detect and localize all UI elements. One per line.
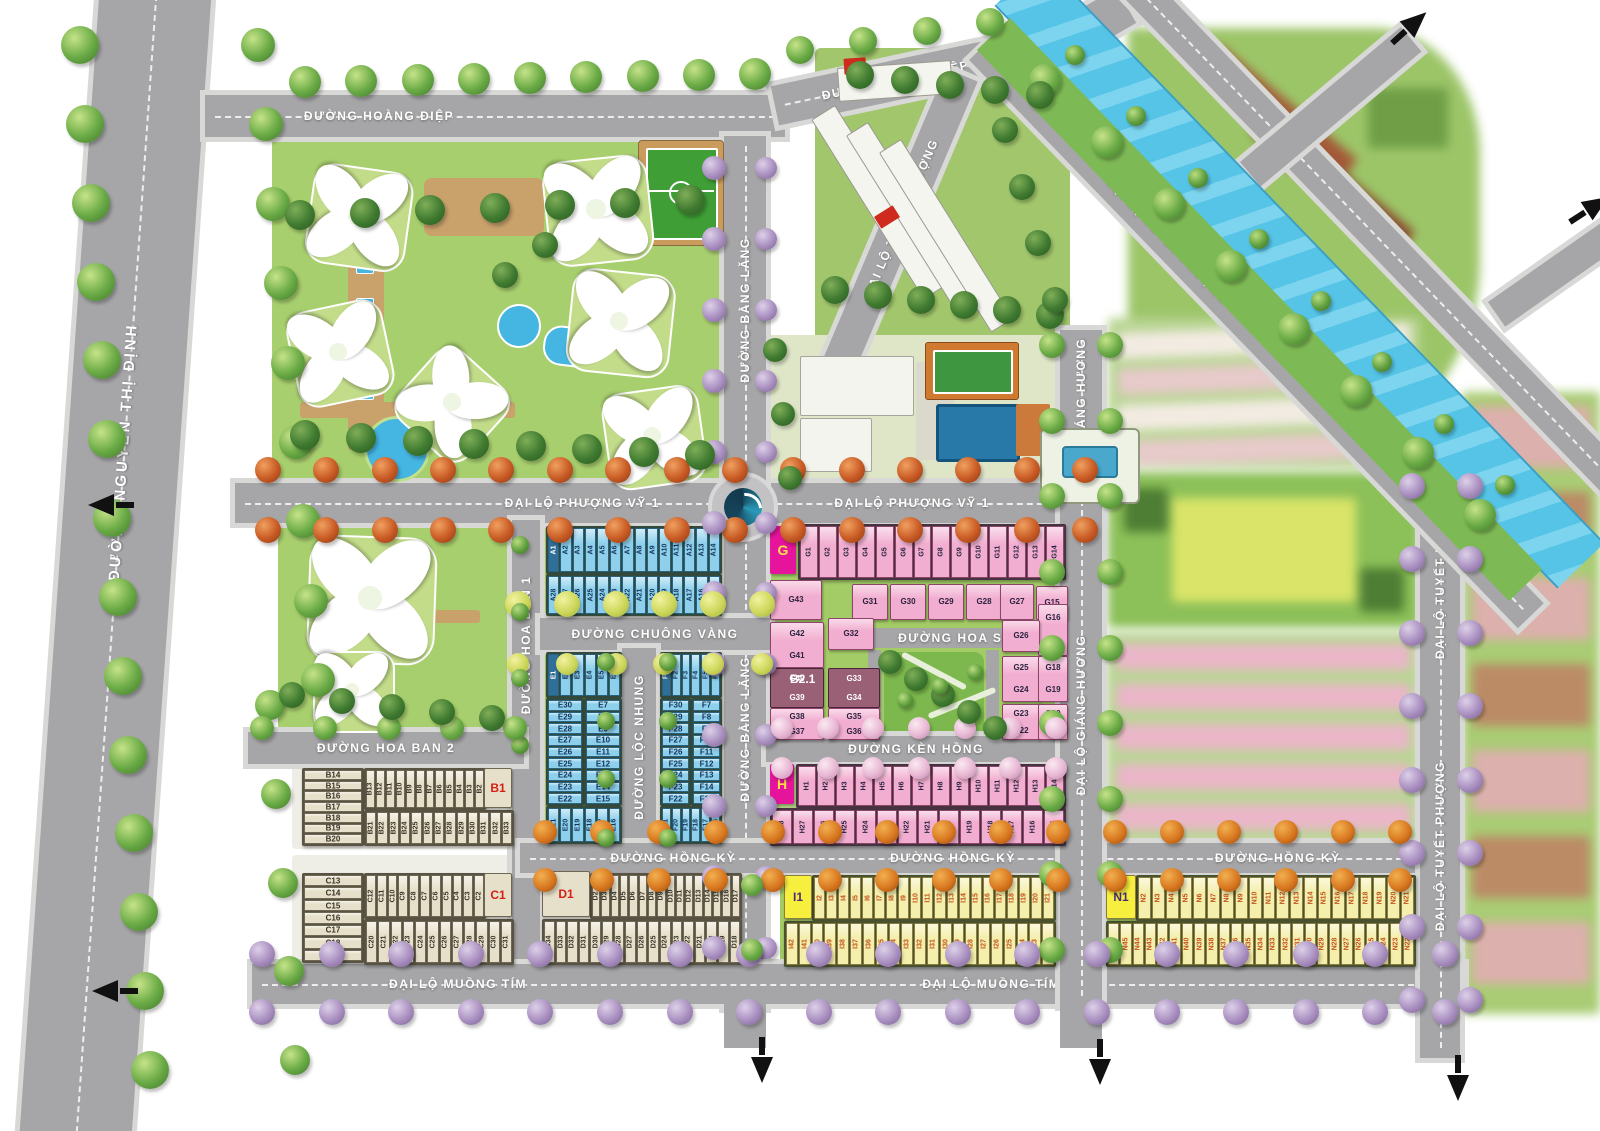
townhouse-cluster: G27 (1000, 584, 1034, 620)
unit-label: B22 (379, 822, 386, 835)
tree-icon (402, 64, 434, 96)
townhouse-unit: C6 (431, 875, 441, 917)
tree-icon (1402, 437, 1434, 469)
unit-label: E7 (598, 701, 608, 710)
townhouse-unit: N14 (1304, 877, 1317, 919)
townhouse-unit: I26 (991, 923, 1003, 965)
townhouse-unit: B9 (406, 770, 415, 808)
unit-label: B5 (446, 785, 453, 794)
tree-icon (319, 999, 345, 1025)
townhouse-unit: B20 (304, 834, 362, 844)
tree-icon (554, 591, 580, 617)
unit-label: C15 (326, 901, 341, 910)
unit-label: A12 (686, 544, 693, 557)
unit-label: D13 (695, 890, 702, 903)
tree-icon (1045, 757, 1067, 779)
unit-label: G34 (846, 694, 861, 702)
tree-icon (388, 999, 414, 1025)
tree-icon (458, 999, 484, 1025)
unit-label: G13 (1033, 545, 1040, 558)
tree-icon (1154, 941, 1180, 967)
unit-label: I26 (993, 939, 1000, 949)
townhouse-unit: E10 (586, 735, 620, 746)
tree-icon (1097, 786, 1123, 812)
unit-label: N38 (1208, 938, 1215, 951)
tree-icon (786, 36, 814, 64)
tree-icon (603, 591, 629, 617)
tree-icon (702, 227, 726, 251)
tree-icon (547, 517, 573, 543)
tree-icon (1331, 820, 1355, 844)
tree-icon (702, 156, 726, 180)
tree-icon (755, 228, 777, 250)
townhouse-unit: I27 (978, 923, 990, 965)
blurred-building (1116, 724, 1410, 750)
tree-icon (511, 603, 529, 621)
tree-icon (610, 188, 640, 218)
unit-label: G31 (862, 598, 877, 606)
unit-label: I14 (961, 893, 968, 903)
tree-icon (1331, 868, 1355, 892)
unit-label: F22 (669, 794, 683, 803)
tree-icon (597, 999, 623, 1025)
unit-label: I27 (981, 939, 988, 949)
unit-label: I25 (1006, 939, 1013, 949)
unit-label: B8 (417, 785, 424, 794)
townhouse-unit: A9 (647, 528, 658, 572)
tree-icon (249, 999, 275, 1025)
tree-icon (1217, 868, 1241, 892)
unit-label: E4 (587, 671, 594, 680)
townhouse-unit: F30 (662, 700, 689, 711)
tree-icon (700, 591, 726, 617)
unit-label: C16 (326, 913, 341, 922)
road-branch-right (1488, 222, 1600, 327)
tree-icon (66, 105, 104, 143)
unit-label: E1 (550, 671, 557, 680)
tree-icon (250, 716, 274, 740)
unit-label: F14 (700, 783, 714, 792)
unit-label: A25 (587, 589, 594, 602)
unit-label: N8 (1224, 894, 1231, 903)
unit-label: I42 (788, 939, 795, 949)
tree-icon (1014, 999, 1040, 1025)
blurred-building (1368, 88, 1448, 148)
unit-label: E29 (558, 713, 572, 722)
townhouse-unit: E28 (548, 723, 582, 734)
townhouse-unit: B14 (304, 770, 362, 780)
unit-label: E19 (574, 819, 581, 831)
townhouse-unit: I37 (850, 923, 862, 965)
tree-icon (976, 8, 1004, 36)
townhouse-unit: E29 (548, 712, 582, 723)
townhouse-unit: G11 (989, 526, 1007, 578)
townhouse-unit: I42 (786, 923, 798, 965)
unit-label: C20 (368, 936, 375, 949)
unit-label: F3 (683, 671, 690, 679)
tree-icon (1097, 635, 1123, 661)
townhouse-unit: B15 (304, 781, 362, 791)
tree-icon (1160, 820, 1184, 844)
unit-label: B27 (436, 822, 443, 835)
tree-icon (1432, 999, 1458, 1025)
tree-icon (763, 338, 787, 362)
townhouse-unit: E19 (572, 808, 583, 842)
townhouse-unit: F7 (693, 700, 720, 711)
unit-label: G24 (1013, 686, 1028, 694)
unit-label: D5 (621, 892, 628, 901)
townhouse-unit: D32 (567, 921, 578, 963)
unit-label: I11 (924, 893, 931, 902)
tree-icon (372, 457, 398, 483)
townhouse-unit: B8 (416, 770, 425, 808)
townhouse-unit: C7 (420, 875, 430, 917)
townhouse-unit: N28 (1329, 923, 1340, 965)
townhouse-unit: I6 (862, 877, 873, 919)
tree-icon (1217, 820, 1241, 844)
townhouse-unit: I38 (837, 923, 849, 965)
tree-icon (755, 157, 777, 179)
tree-icon (516, 431, 546, 461)
unit-label: C30 (491, 936, 498, 949)
townhouse-unit: D17 (732, 875, 740, 917)
street-label: ĐẠI LỘ GIÁNG HƯƠNG (1074, 635, 1088, 796)
unit-label: D17 (732, 890, 739, 903)
unit-label: B3 (466, 785, 473, 794)
tree-icon (1274, 820, 1298, 844)
tree-icon (605, 517, 631, 543)
unit-label: G11 (995, 546, 1002, 559)
tree-icon (771, 717, 793, 739)
unit-label: N10 (1252, 892, 1259, 905)
tree-icon (1065, 45, 1085, 65)
unit-label: D3 (602, 892, 609, 901)
unit-label: B2 (476, 785, 483, 794)
townhouse-unit: E15 (586, 793, 620, 804)
unit-label: C13 (326, 876, 341, 885)
unit-label: I3 (828, 895, 835, 901)
tree-icon (597, 941, 623, 967)
unit-label: G41 (789, 652, 804, 660)
townhouse-unit: D31 (579, 921, 590, 963)
unit-label: F13 (700, 771, 714, 780)
townhouse-unit: N29 (1317, 923, 1328, 965)
unit-label: I38 (840, 939, 847, 949)
tree-icon (1495, 475, 1515, 495)
unit-label: C5 (443, 892, 450, 901)
tree-icon (989, 820, 1013, 844)
tree-icon (249, 107, 283, 141)
blurred-building (1172, 498, 1356, 602)
townhouse-unit: H16 (1023, 810, 1043, 844)
unit-label: C4 (454, 892, 461, 901)
site-plan: ĐƯỜNG NGUYỄN THỊ ĐỊNHĐƯỜNG HOÀNG ĐIỆPĐƯỜ… (0, 0, 1600, 1131)
unit-label: N11 (1266, 892, 1273, 904)
tower-core (358, 586, 382, 610)
tree-icon (1399, 840, 1425, 866)
tree-icon (897, 692, 913, 708)
unit-label: A21 (637, 589, 644, 602)
tree-icon (556, 653, 578, 675)
arrow-head (751, 1057, 773, 1083)
arrow-bar (116, 502, 134, 508)
unit-label: D8 (649, 892, 656, 901)
unit-label: D7 (639, 892, 646, 901)
blurred-building (1116, 684, 1410, 710)
unit-label: G28 (976, 598, 991, 606)
street-label: ĐƯỜNG HỒNG KỲ (610, 851, 736, 865)
tree-icon (545, 190, 575, 220)
tree-icon (1223, 999, 1249, 1025)
unit-label: C12 (367, 890, 374, 903)
townhouse-unit: D6 (629, 875, 637, 917)
tree-icon (350, 198, 380, 228)
tree-icon (1097, 559, 1123, 585)
unit-label: D12 (686, 890, 693, 903)
unit-label: G8 (938, 547, 945, 556)
tree-icon (1432, 941, 1458, 967)
tennis-court (933, 350, 1013, 394)
road-nguyen-thi-dinh: ĐƯỜNG NGUYỄN THỊ ĐỊNH (19, 0, 212, 1131)
townhouse-cluster: G42G41 (770, 622, 824, 668)
unit-label: A2 (563, 546, 570, 555)
tree-icon (675, 185, 705, 215)
townhouse-unit: I15 (971, 877, 982, 919)
tree-icon (989, 868, 1013, 892)
tree-icon (83, 341, 121, 379)
tree-icon (739, 58, 771, 90)
unit-label: B33 (503, 822, 510, 835)
townhouse-unit: I32 (914, 923, 926, 965)
tree-icon (503, 716, 527, 740)
unit-label: H10 (975, 780, 982, 793)
unit-label: C31 (503, 936, 510, 949)
tree-icon (1072, 517, 1098, 543)
tree-icon (249, 941, 275, 967)
townhouse-unit: N2 (1138, 877, 1151, 919)
unit-label: E25 (558, 759, 572, 768)
tree-icon (1388, 820, 1412, 844)
blurred-area (1106, 632, 1420, 844)
unit-label: D2 (593, 892, 600, 901)
tree-icon (547, 457, 573, 483)
tree-icon (755, 441, 777, 463)
tree-icon (533, 868, 557, 892)
townhouse-unit: N27 (1341, 923, 1352, 965)
unit-label: E30 (558, 701, 572, 710)
unit-label: B11 (387, 783, 394, 795)
tree-icon (1340, 375, 1372, 407)
unit-label: F12 (700, 759, 714, 768)
unit-label: C6 (432, 892, 439, 901)
street-label: ĐẠI LỘ TUYẾT PHƯỢNG (1433, 761, 1447, 931)
unit-label: G26 (1013, 632, 1028, 640)
unit-label: G12 (1014, 545, 1021, 558)
tree-icon (932, 678, 948, 694)
unit-label: G6 (900, 547, 907, 556)
unit-label: A7 (624, 546, 631, 555)
tree-icon (907, 286, 935, 314)
tree-icon (736, 999, 762, 1025)
tree-icon (532, 232, 558, 258)
unit-label: B23 (390, 822, 397, 835)
exit-arrow-icon (751, 1037, 773, 1085)
townhouse-unit: A3 (573, 528, 584, 572)
street-label: ĐẠI LỘ PHƯỢNG VỸ 1 (505, 496, 660, 510)
townhouse-unit: E7 (586, 700, 620, 711)
unit-label: G14 (1051, 545, 1058, 558)
arrow-bar (1390, 29, 1407, 46)
townhouse-unit: A13 (696, 528, 707, 572)
tree-icon (597, 653, 615, 671)
unit-label: D26 (639, 936, 646, 949)
unit-label: F8 (702, 713, 711, 722)
unit-label: B24 (402, 822, 409, 835)
block-marker-C1: C1 (484, 873, 512, 917)
tree-icon (415, 195, 445, 225)
townhouse-unit: B28 (445, 812, 455, 844)
unit-label: C25 (429, 936, 436, 949)
tree-icon (377, 716, 401, 740)
unit-label: G4 (862, 547, 869, 556)
townhouse-unit: D25 (648, 921, 659, 963)
townhouse-unit: F14 (693, 782, 720, 793)
street-label: ĐƯỜNG HỒNG KỲ (890, 851, 1016, 865)
unit-label: I8 (888, 895, 895, 901)
townhouse-unit: B31 (479, 812, 489, 844)
street-label: ĐƯỜNG KÈN HỒNG (848, 742, 984, 756)
street-label: ĐƯỜNG BẰNG LĂNG (738, 238, 752, 383)
unit-label: H8 (937, 782, 944, 791)
unit-label: N34 (1258, 938, 1265, 951)
tree-icon (945, 999, 971, 1025)
unit-label: G42 (789, 630, 804, 638)
tree-icon (403, 426, 433, 456)
townhouse-unit: N18 (1360, 877, 1373, 919)
street-label: ĐƯỜNG CHUÔNG VÀNG (571, 627, 738, 641)
unit-label: D9 (658, 892, 665, 901)
unit-label: B6 (436, 785, 443, 794)
tree-icon (817, 717, 839, 739)
tree-icon (597, 712, 615, 730)
townhouse-unit: I19 (1019, 877, 1030, 919)
tree-icon (849, 27, 877, 55)
unit-label: N27 (1343, 938, 1350, 951)
townhouse-unit: N15 (1318, 877, 1331, 919)
townhouse-unit: E24 (548, 770, 582, 781)
tree-icon (875, 999, 901, 1025)
townhouse-unit: B23 (389, 812, 399, 844)
blurred-building (1472, 750, 1590, 812)
tree-icon (1039, 635, 1065, 661)
tree-icon (755, 512, 777, 534)
tree-icon (749, 591, 775, 617)
tree-icon (771, 402, 795, 426)
tree-icon (511, 536, 529, 554)
tree-icon (345, 65, 377, 97)
unit-label: I12 (936, 893, 943, 903)
unit-label: N9 (1238, 894, 1245, 903)
block-marker-B1: B1 (484, 768, 512, 808)
unit-label: B13 (367, 783, 374, 796)
unit-label: G5 (881, 547, 888, 556)
unit-label: E28 (558, 724, 572, 733)
townhouse-unit: H27 (793, 810, 813, 844)
tree-icon (1293, 941, 1319, 967)
unit-label: A11 (674, 544, 681, 556)
unit-label: N6 (1196, 894, 1203, 903)
unit-label: A1 (550, 546, 557, 555)
exit-arrow-icon (86, 494, 134, 516)
tree-icon (329, 688, 355, 714)
unit-label: G2 (824, 547, 831, 556)
tree-icon (241, 28, 275, 62)
unit-label: B9 (407, 785, 414, 794)
townhouse-cluster: G26 (1002, 620, 1040, 652)
unit-label: C2 (476, 892, 483, 901)
townhouse-unit: H22 (898, 810, 918, 844)
unit-label: F11 (700, 748, 713, 757)
unit-label: N23 (1393, 938, 1400, 951)
unit-label: I4 (840, 895, 847, 901)
unit-label: F2 (673, 671, 680, 679)
unit-label: G39 (789, 694, 804, 702)
apartment-tower (589, 373, 715, 499)
townhouse-unit: H3 (836, 766, 854, 806)
townhouse-unit: H1 (798, 766, 816, 806)
tree-icon (702, 298, 726, 322)
unit-label: H24 (862, 821, 869, 834)
unit-label: A3 (575, 546, 582, 555)
townhouse-unit: C12 (366, 875, 376, 917)
tree-icon (1457, 840, 1483, 866)
unit-label: B30 (469, 822, 476, 835)
townhouse-unit: E30 (548, 700, 582, 711)
townhouse-unit: N44 (1133, 923, 1144, 965)
unit-label: F30 (669, 701, 683, 710)
tree-icon (605, 457, 631, 483)
townhouse-unit: N19 (1373, 877, 1386, 919)
tree-icon (1072, 457, 1098, 483)
townhouse-unit: A8 (635, 528, 646, 572)
townhouse-unit: F22 (662, 793, 689, 804)
unit-label: C17 (326, 926, 341, 935)
tree-icon (667, 999, 693, 1025)
tree-icon (1278, 313, 1310, 345)
townhouse-unit: B27 (434, 812, 444, 844)
tree-icon (741, 874, 763, 896)
street-label: ĐƯỜNG HOA SỮ (898, 631, 1014, 645)
unit-label: G25 (1013, 664, 1028, 672)
tree-icon (1097, 710, 1123, 736)
road-loc-nhung: ĐƯỜNG LỘC NHUNG (622, 648, 656, 845)
tree-icon (683, 59, 715, 91)
unit-label: N16 (1335, 892, 1342, 905)
tree-icon (1399, 473, 1425, 499)
townhouse-unit: C25 (427, 921, 438, 963)
townhouse-cluster: G31 (852, 584, 888, 620)
unit-label: A9 (649, 546, 656, 555)
townhouse-unit: F19 (682, 808, 691, 842)
unit-label: G29 (938, 598, 953, 606)
unit-label: I5 (852, 895, 859, 901)
unit-label: G9 (957, 547, 964, 556)
unit-label: N33 (1270, 938, 1277, 951)
tree-icon (983, 716, 1007, 740)
unit-label: I33 (904, 939, 911, 949)
unit-label: H16 (1030, 821, 1037, 834)
clubhouse-pool (936, 404, 1020, 462)
